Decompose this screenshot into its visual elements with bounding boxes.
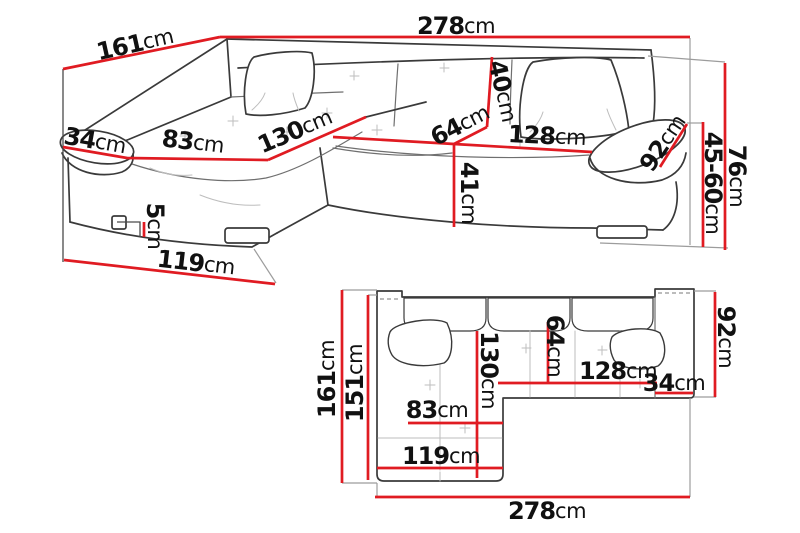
plan-pillow-left xyxy=(388,320,451,366)
dim-label-64-plan: 64cm xyxy=(541,315,569,377)
ext-chaise-tick-3d xyxy=(254,249,276,283)
dimension-labels-3d: 278cm 161cm 34cm 83cm 130cm 64cm 40cm 41… xyxy=(62,12,751,281)
dim-label-92-plan: 92cm xyxy=(712,306,740,368)
dim-label-278-plan: 278cm xyxy=(508,497,586,525)
dim-label-76-3d: 76cm xyxy=(723,145,751,207)
plan-back-cushion xyxy=(572,298,653,331)
sofa-3d-pillow-left xyxy=(244,52,314,116)
dim-label-151-plan: 151cm xyxy=(341,344,369,422)
dim-label-161-plan: 161cm xyxy=(313,340,341,418)
dim-label-34-plan: 34cm xyxy=(643,369,705,397)
dim-label-41-3d: 41cm xyxy=(455,162,483,224)
sofa-3d-back-top-edge xyxy=(227,39,651,50)
sofa-3d-back-right-edge xyxy=(651,50,655,124)
sofa-leg xyxy=(597,226,647,238)
sofa-3d-chaise-right-face xyxy=(320,148,328,205)
dim-label-119-plan: 119cm xyxy=(402,442,480,470)
sofa-3d-base-corner xyxy=(277,205,328,233)
dim-label-119-3d: 119cm xyxy=(156,245,237,282)
ext-top-tick-3d xyxy=(648,56,725,62)
sofa-3d-backrest-divider xyxy=(394,64,398,126)
dim-label-161-3d: 161cm xyxy=(94,22,176,66)
dim-label-128-3d: 128cm xyxy=(507,120,586,152)
sofa-dimension-diagram: 278cm 161cm 34cm 83cm 130cm 64cm 40cm 41… xyxy=(0,0,800,533)
dim-label-45-60-3d: 45-60cm xyxy=(699,132,727,235)
sofa-3d-corner-crease xyxy=(227,39,231,97)
sofa-3d-corner-seat-skirt xyxy=(333,148,452,155)
dim-label-5-3d: 5cm xyxy=(141,203,169,250)
sofa-3d-chaise-left-face xyxy=(68,158,70,222)
dim-label-83-3d: 83cm xyxy=(160,124,225,159)
sofa-3d-corner-seat-edge xyxy=(366,102,426,117)
dim-label-130-plan: 130cm xyxy=(475,331,503,409)
ext-floor-tick-3d xyxy=(600,243,728,248)
dim-label-83-plan: 83cm xyxy=(406,396,468,424)
sofa-3d-base-right-face xyxy=(663,182,677,230)
sofa-leg xyxy=(225,228,269,243)
dim-label-278-3d: 278cm xyxy=(417,12,495,40)
